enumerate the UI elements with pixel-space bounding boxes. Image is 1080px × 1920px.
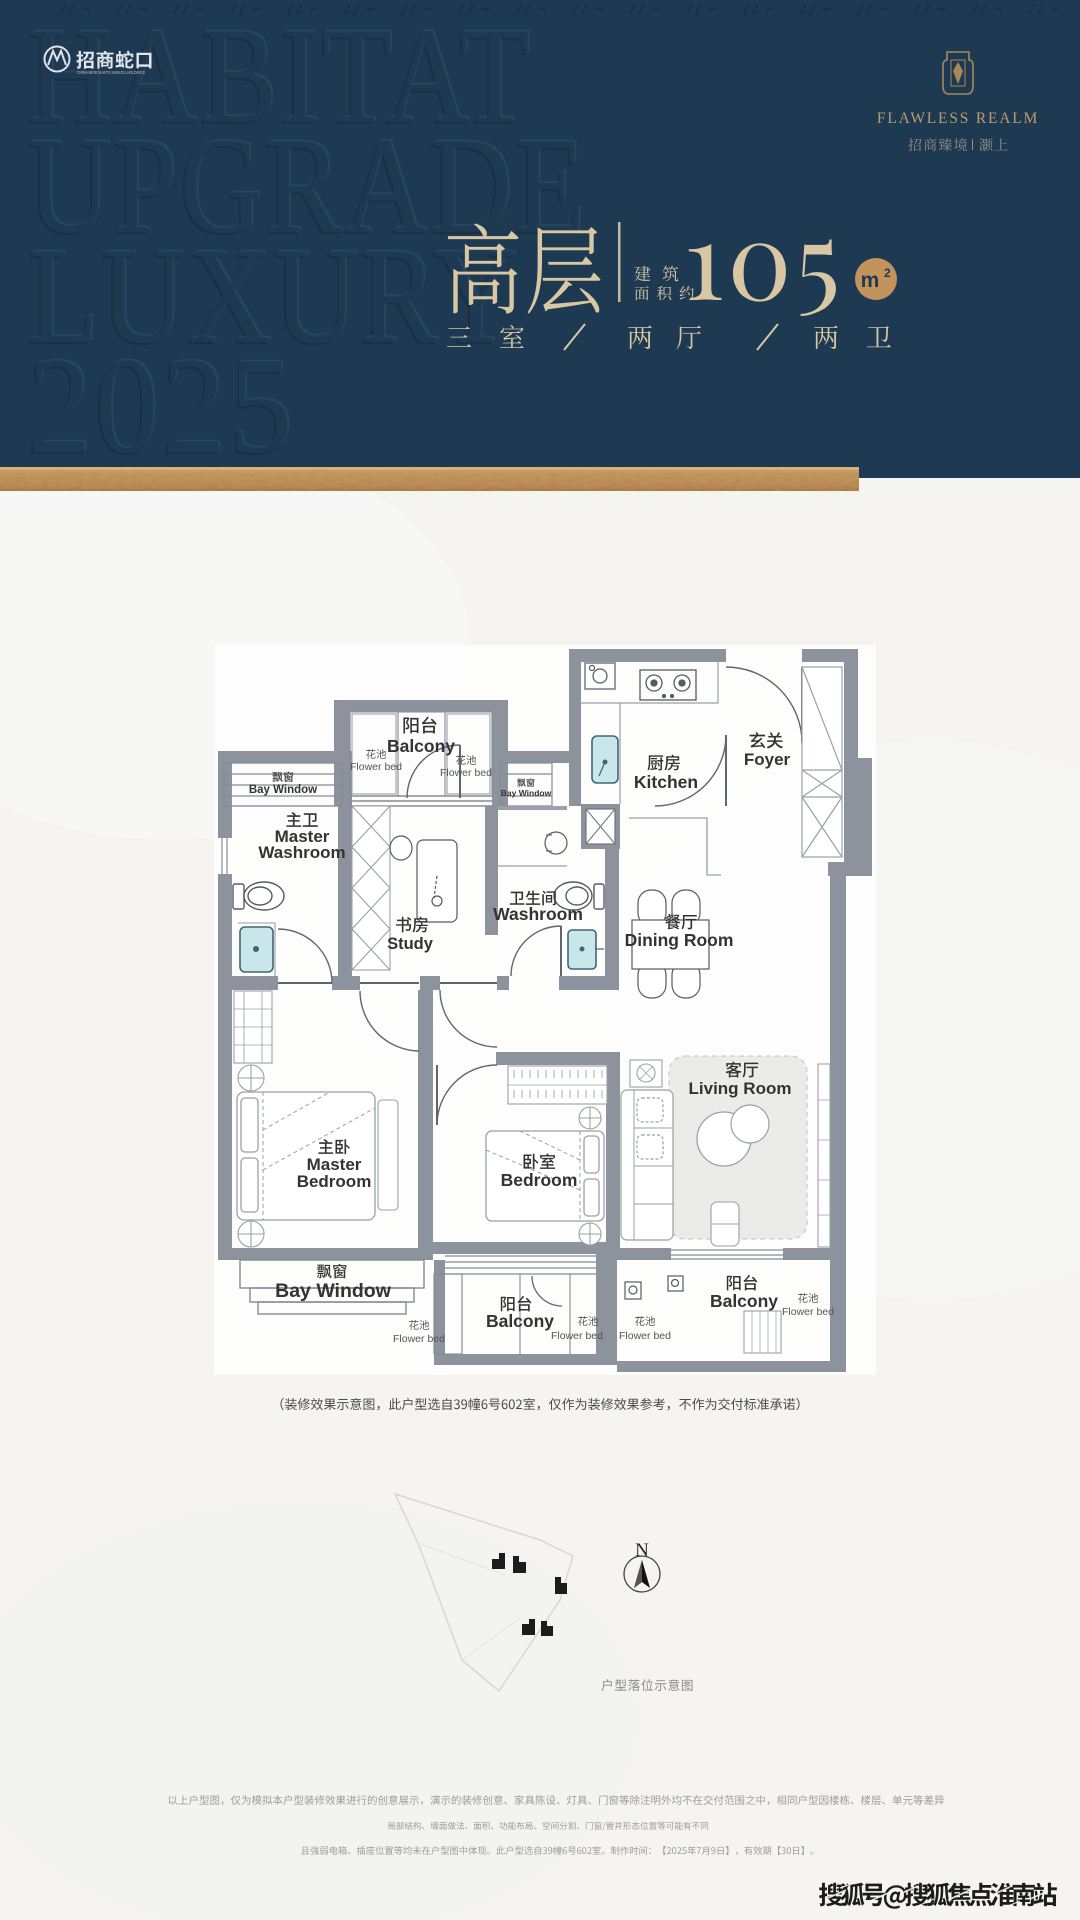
svg-text:Balcony: Balcony (486, 1311, 554, 1331)
svg-text:Bedroom: Bedroom (501, 1170, 578, 1190)
svg-text:Study: Study (387, 935, 434, 953)
svg-text:2025: 2025 (28, 329, 296, 482)
svg-text:FLAWLESS REALM: FLAWLESS REALM (877, 110, 1039, 127)
svg-text:Flower bed: Flower bed (350, 761, 402, 773)
svg-text:Washroom: Washroom (493, 904, 583, 924)
svg-text:Balcony: Balcony (387, 736, 455, 756)
svg-text:CHINA MERCHANTS SHEKOU HOLDING: CHINA MERCHANTS SHEKOU HOLDINGS (77, 70, 145, 75)
svg-text:Foyer: Foyer (744, 750, 791, 769)
svg-text:Flower bed: Flower bed (782, 1306, 834, 1318)
svg-text:Washroom: Washroom (258, 843, 345, 862)
svg-text:Balcony: Balcony (710, 1291, 778, 1311)
svg-text:Bay Window: Bay Window (501, 788, 552, 798)
svg-text:Flower bed: Flower bed (619, 1330, 671, 1342)
svg-text:Flower bed: Flower bed (393, 1333, 445, 1345)
svg-text:Bay Window: Bay Window (249, 784, 317, 796)
svg-text:Dining Room: Dining Room (625, 930, 734, 950)
svg-text:Bedroom: Bedroom (297, 1172, 372, 1191)
svg-text:Flower bed: Flower bed (440, 767, 492, 779)
svg-text:Bay Window: Bay Window (275, 1280, 392, 1302)
svg-text:m: m (861, 269, 880, 292)
svg-text:Flower bed: Flower bed (551, 1330, 603, 1342)
svg-text:Kitchen: Kitchen (634, 772, 698, 792)
svg-text:N: N (635, 1540, 649, 1561)
svg-text:Living Room: Living Room (689, 1079, 792, 1098)
svg-text:2: 2 (884, 266, 891, 280)
